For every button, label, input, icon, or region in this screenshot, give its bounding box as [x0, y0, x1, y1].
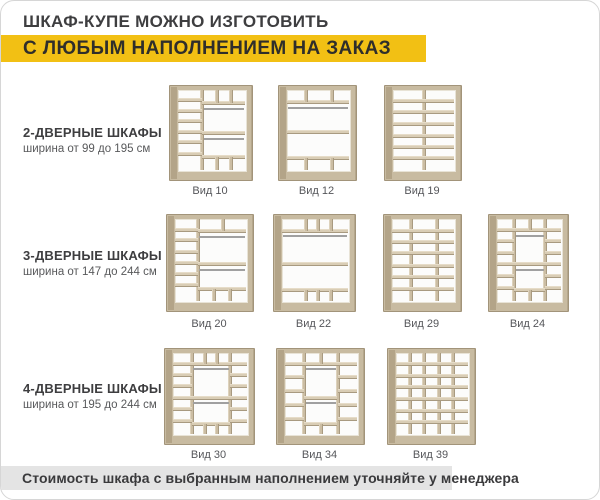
- shelf: [192, 422, 231, 426]
- shelf: [178, 98, 202, 102]
- hanging-rod: [193, 368, 229, 370]
- shelf: [497, 274, 514, 278]
- divider-vertical: [304, 158, 308, 170]
- promo-page: ШКАФ-КУПЕ МОЖНО ИЗГОТОВИТЬ С ЛЮБЫМ НАПОЛ…: [0, 0, 600, 500]
- divider-vertical: [215, 353, 219, 364]
- wardrobe-interior: [178, 90, 247, 172]
- divider-vertical: [319, 353, 323, 364]
- hanging-rod: [306, 402, 336, 404]
- wardrobe-label: Вид 10: [170, 185, 250, 197]
- wardrobe-label: Вид 19: [382, 185, 462, 197]
- highlight-banner-text: С ЛЮБЫМ НАПОЛНЕНИЕМ НА ЗАКАЗ: [1, 38, 391, 60]
- shelf: [173, 362, 192, 366]
- wardrobe-interior: [282, 219, 350, 303]
- shelf: [393, 134, 454, 138]
- shelf: [497, 286, 514, 290]
- shelf: [178, 109, 202, 113]
- shelf: [173, 419, 192, 423]
- hanging-rod: [516, 269, 544, 271]
- divider-vertical: [304, 90, 308, 102]
- shelf: [230, 373, 247, 377]
- shelf: [392, 240, 454, 244]
- row-heading-subtitle: ширина от 147 до 244 см: [23, 266, 173, 278]
- wardrobe-label: Вид 34: [280, 449, 360, 461]
- wardrobe-diagram: [488, 214, 569, 312]
- row-heading-subtitle: ширина от 99 до 195 см: [23, 143, 173, 155]
- wardrobe-diagram: [278, 85, 357, 181]
- shelf: [202, 101, 245, 105]
- divider-vertical: [304, 290, 308, 302]
- shelf: [545, 239, 561, 243]
- shelf: [287, 100, 349, 104]
- hanging-rod: [283, 235, 346, 237]
- wardrobe-interior: [285, 353, 359, 436]
- wardrobe-side-panel: [385, 216, 391, 310]
- wardrobe-diagram: [164, 348, 255, 445]
- wardrobe-side-panel: [278, 350, 284, 443]
- shelf: [392, 229, 454, 233]
- shelf: [514, 262, 545, 266]
- shelf: [497, 228, 514, 232]
- wardrobe-side-panel: [275, 216, 281, 310]
- hanging-rod: [204, 108, 245, 110]
- shelf: [338, 403, 357, 407]
- shelf: [396, 420, 468, 424]
- divider-vertical: [329, 290, 333, 302]
- wardrobe-side-panel: [386, 87, 392, 179]
- shelf: [282, 288, 348, 292]
- shelf: [285, 389, 304, 393]
- hanging-rod: [193, 402, 229, 404]
- shelf: [393, 122, 454, 126]
- shelf: [287, 130, 349, 134]
- wardrobe-interior: [175, 219, 248, 303]
- shelf: [287, 156, 349, 160]
- divider-vertical: [316, 290, 320, 302]
- wardrobe-side-panel: [280, 87, 286, 179]
- shelf: [497, 262, 514, 266]
- wardrobe-interior: [396, 353, 470, 436]
- wardrobe-side-panel: [166, 350, 172, 443]
- shelf: [392, 287, 454, 291]
- shelf: [282, 262, 348, 266]
- wardrobe-diagram: [166, 214, 254, 312]
- footer-note-text: Стоимость шкафа с выбранным наполнением …: [1, 470, 519, 486]
- divider-vertical: [304, 219, 308, 231]
- row-heading-title: 2-ДВЕРНЫЕ ШКАФЫ: [23, 125, 173, 140]
- wardrobe-diagram: [384, 85, 462, 181]
- divider-vertical: [229, 157, 233, 170]
- wardrobe-diagram: [273, 214, 356, 312]
- divider-vertical: [330, 90, 334, 102]
- wardrobe-label: Вид 29: [382, 318, 462, 330]
- shelf: [230, 362, 247, 366]
- shelf: [393, 110, 454, 114]
- hanging-rod: [516, 235, 544, 237]
- shelf: [175, 250, 198, 254]
- shelf: [393, 99, 454, 103]
- wardrobe-diagram: [383, 214, 462, 312]
- hanging-rod: [199, 269, 245, 271]
- footer-note-bar: Стоимость шкафа с выбранным наполнением …: [1, 466, 452, 490]
- row-heading-3-door: 3-ДВЕРНЫЕ ШКАФЫ ширина от 147 до 244 см: [23, 248, 173, 278]
- row-heading-2-door: 2-ДВЕРНЫЕ ШКАФЫ ширина от 99 до 195 см: [23, 125, 173, 155]
- wardrobe-interior: [497, 219, 563, 303]
- wardrobe-diagram: [169, 85, 253, 181]
- shelf: [545, 286, 561, 290]
- divider-vertical: [329, 219, 333, 231]
- highlight-banner: С ЛЮБЫМ НАПОЛНЕНИЕМ НА ЗАКАЗ: [1, 35, 426, 62]
- shelf: [304, 396, 337, 400]
- divider-vertical: [528, 219, 532, 230]
- wardrobe-side-panel: [490, 216, 496, 310]
- row-heading-title: 3-ДВЕРНЫЕ ШКАФЫ: [23, 248, 173, 263]
- shelf: [285, 417, 304, 421]
- shelf: [202, 155, 245, 159]
- wardrobe-interior: [287, 90, 351, 172]
- shelf: [392, 251, 454, 255]
- divider-vertical: [215, 90, 219, 103]
- shelf: [545, 228, 561, 232]
- shelf: [175, 283, 198, 287]
- shelf: [178, 152, 202, 156]
- shelf: [230, 407, 247, 411]
- shelf: [282, 229, 348, 233]
- wardrobe-label: Вид 22: [274, 318, 354, 330]
- divider-vertical: [319, 424, 323, 435]
- shelf: [545, 274, 561, 278]
- wardrobe-diagram: [276, 348, 365, 445]
- shelf: [545, 262, 561, 266]
- shelf: [338, 389, 357, 393]
- shelf: [178, 130, 202, 134]
- row-heading-subtitle: ширина от 195 до 244 см: [23, 399, 173, 411]
- wardrobe-side-panel: [389, 350, 395, 443]
- shelf: [396, 409, 468, 413]
- shelf: [338, 417, 357, 421]
- divider-vertical: [215, 424, 219, 435]
- page-title: ШКАФ-КУПЕ МОЖНО ИЗГОТОВИТЬ: [23, 12, 328, 32]
- divider-vertical: [221, 219, 225, 231]
- hanging-rod: [204, 138, 245, 140]
- divider-vertical: [212, 289, 216, 301]
- shelf: [285, 375, 304, 379]
- wardrobe-interior: [392, 219, 456, 303]
- wardrobe-side-panel: [168, 216, 174, 310]
- wardrobe-label: Вид 30: [169, 449, 249, 461]
- shelf: [178, 119, 202, 123]
- row-heading-4-door: 4-ДВЕРНЫЕ ШКАФЫ ширина от 195 до 244 см: [23, 381, 173, 411]
- shelf: [545, 251, 561, 255]
- shelf: [396, 397, 468, 401]
- shelf: [202, 131, 245, 135]
- shelf: [175, 272, 198, 276]
- shelf: [497, 251, 514, 255]
- shelf: [393, 145, 454, 149]
- shelf: [173, 373, 192, 377]
- shelf: [392, 275, 454, 279]
- shelf: [230, 384, 247, 388]
- shelf: [285, 403, 304, 407]
- divider-vertical: [203, 424, 207, 435]
- shelf: [338, 375, 357, 379]
- wardrobe-side-panel: [171, 87, 177, 179]
- hanging-rod: [306, 368, 336, 370]
- shelf: [173, 396, 192, 400]
- shelf: [173, 407, 192, 411]
- wardrobe-diagram: [387, 348, 476, 445]
- shelf: [198, 287, 246, 291]
- divider-vertical: [215, 157, 219, 170]
- hanging-rod: [288, 107, 348, 109]
- divider-vertical: [528, 290, 532, 302]
- shelf: [175, 261, 198, 265]
- shelf: [175, 238, 198, 242]
- wardrobe-label: Вид 39: [391, 449, 471, 461]
- divider-vertical: [330, 158, 334, 170]
- shelf: [497, 239, 514, 243]
- wardrobe-label: Вид 12: [277, 185, 357, 197]
- shelf: [393, 156, 454, 160]
- shelf: [192, 362, 231, 366]
- shelf: [396, 374, 468, 378]
- wardrobe-interior: [393, 90, 456, 172]
- shelf: [192, 396, 231, 400]
- hanging-rod: [199, 236, 245, 238]
- divider-vertical: [203, 353, 207, 364]
- shelf: [392, 264, 454, 268]
- wardrobe-label: Вид 24: [488, 318, 568, 330]
- shelf: [175, 228, 198, 232]
- divider-vertical: [228, 289, 232, 301]
- shelf: [230, 419, 247, 423]
- shelf: [396, 362, 468, 366]
- shelf: [396, 385, 468, 389]
- shelf: [198, 262, 246, 266]
- row-heading-title: 4-ДВЕРНЫЕ ШКАФЫ: [23, 381, 173, 396]
- divider-vertical: [229, 90, 233, 103]
- wardrobe-label: Вид 20: [169, 318, 249, 330]
- shelf: [178, 140, 202, 144]
- wardrobe-interior: [173, 353, 249, 436]
- divider-vertical: [316, 219, 320, 231]
- shelf: [173, 384, 192, 388]
- shelf: [230, 396, 247, 400]
